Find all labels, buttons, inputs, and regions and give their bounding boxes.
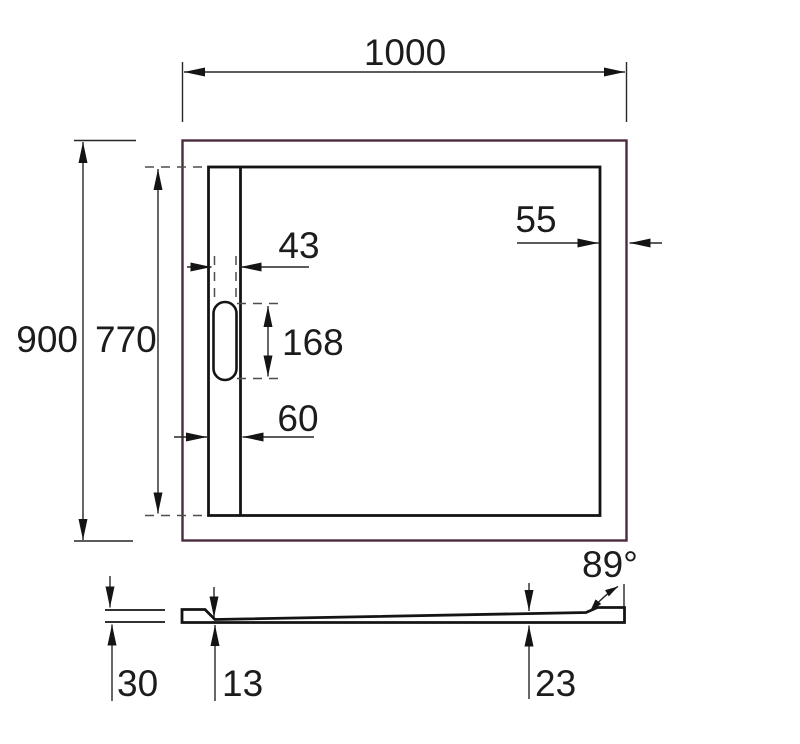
technical-drawing-page: 1000 900 770 55 43 168 60	[0, 0, 800, 744]
drain-slot	[214, 302, 237, 380]
dim-inner-depth: 770	[95, 169, 158, 514]
dim-label-168: 168	[282, 322, 344, 363]
dim-label-900: 900	[16, 319, 78, 360]
dim-label-55: 55	[515, 199, 556, 240]
dim-slot-length: 168	[268, 306, 344, 377]
side-profile	[182, 608, 625, 623]
dim-right-thickness: 23	[529, 583, 576, 704]
dim-label-1000: 1000	[364, 32, 446, 73]
technical-drawing-canvas: 1000 900 770 55 43 168 60	[0, 0, 800, 744]
dim-label-23: 23	[535, 663, 576, 704]
dim-channel-width: 60	[174, 398, 319, 439]
dim-label-770: 770	[95, 319, 157, 360]
dim-label-30: 30	[117, 663, 158, 704]
dim-label-89deg: 89°	[582, 544, 638, 585]
dim-right-inset: 55	[515, 199, 662, 243]
dim-label-13: 13	[222, 663, 263, 704]
dim-wall-angle: 89°	[582, 544, 638, 612]
tray-outer-edge	[183, 141, 627, 541]
dim-base-thickness: 13	[214, 587, 263, 704]
dim-edge-height: 30	[110, 576, 158, 704]
dim-slot-width: 43	[187, 225, 320, 267]
dim-label-43: 43	[278, 225, 319, 266]
dim-overall-width: 1000	[183, 32, 627, 122]
dim-label-60: 60	[277, 398, 318, 439]
